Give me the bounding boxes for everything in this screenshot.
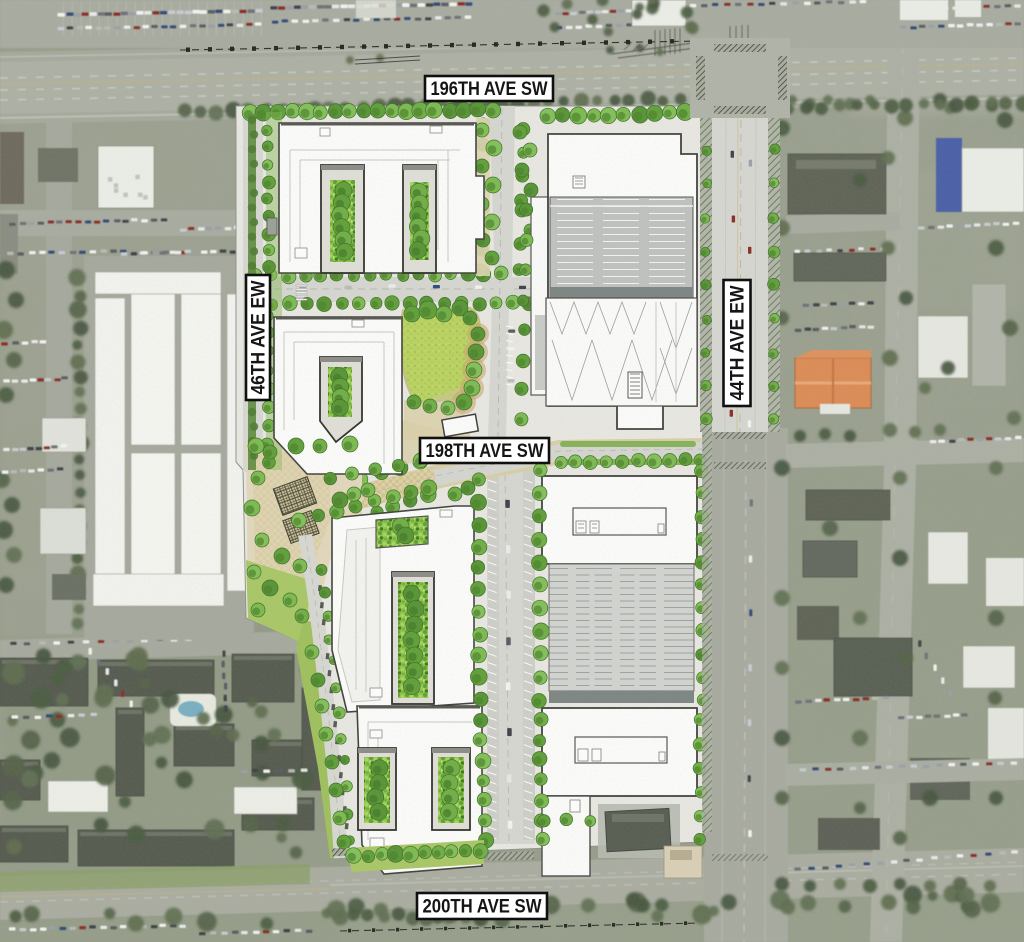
svg-text:200TH AVE SW: 200TH AVE SW: [423, 897, 542, 918]
svg-text:46TH AVE EW: 46TH AVE EW: [249, 280, 270, 394]
svg-text:196TH AVE SW: 196TH AVE SW: [431, 79, 548, 100]
svg-text:198TH AVE SW: 198TH AVE SW: [426, 441, 544, 462]
svg-text:44TH AVE EW: 44TH AVE EW: [728, 285, 749, 400]
